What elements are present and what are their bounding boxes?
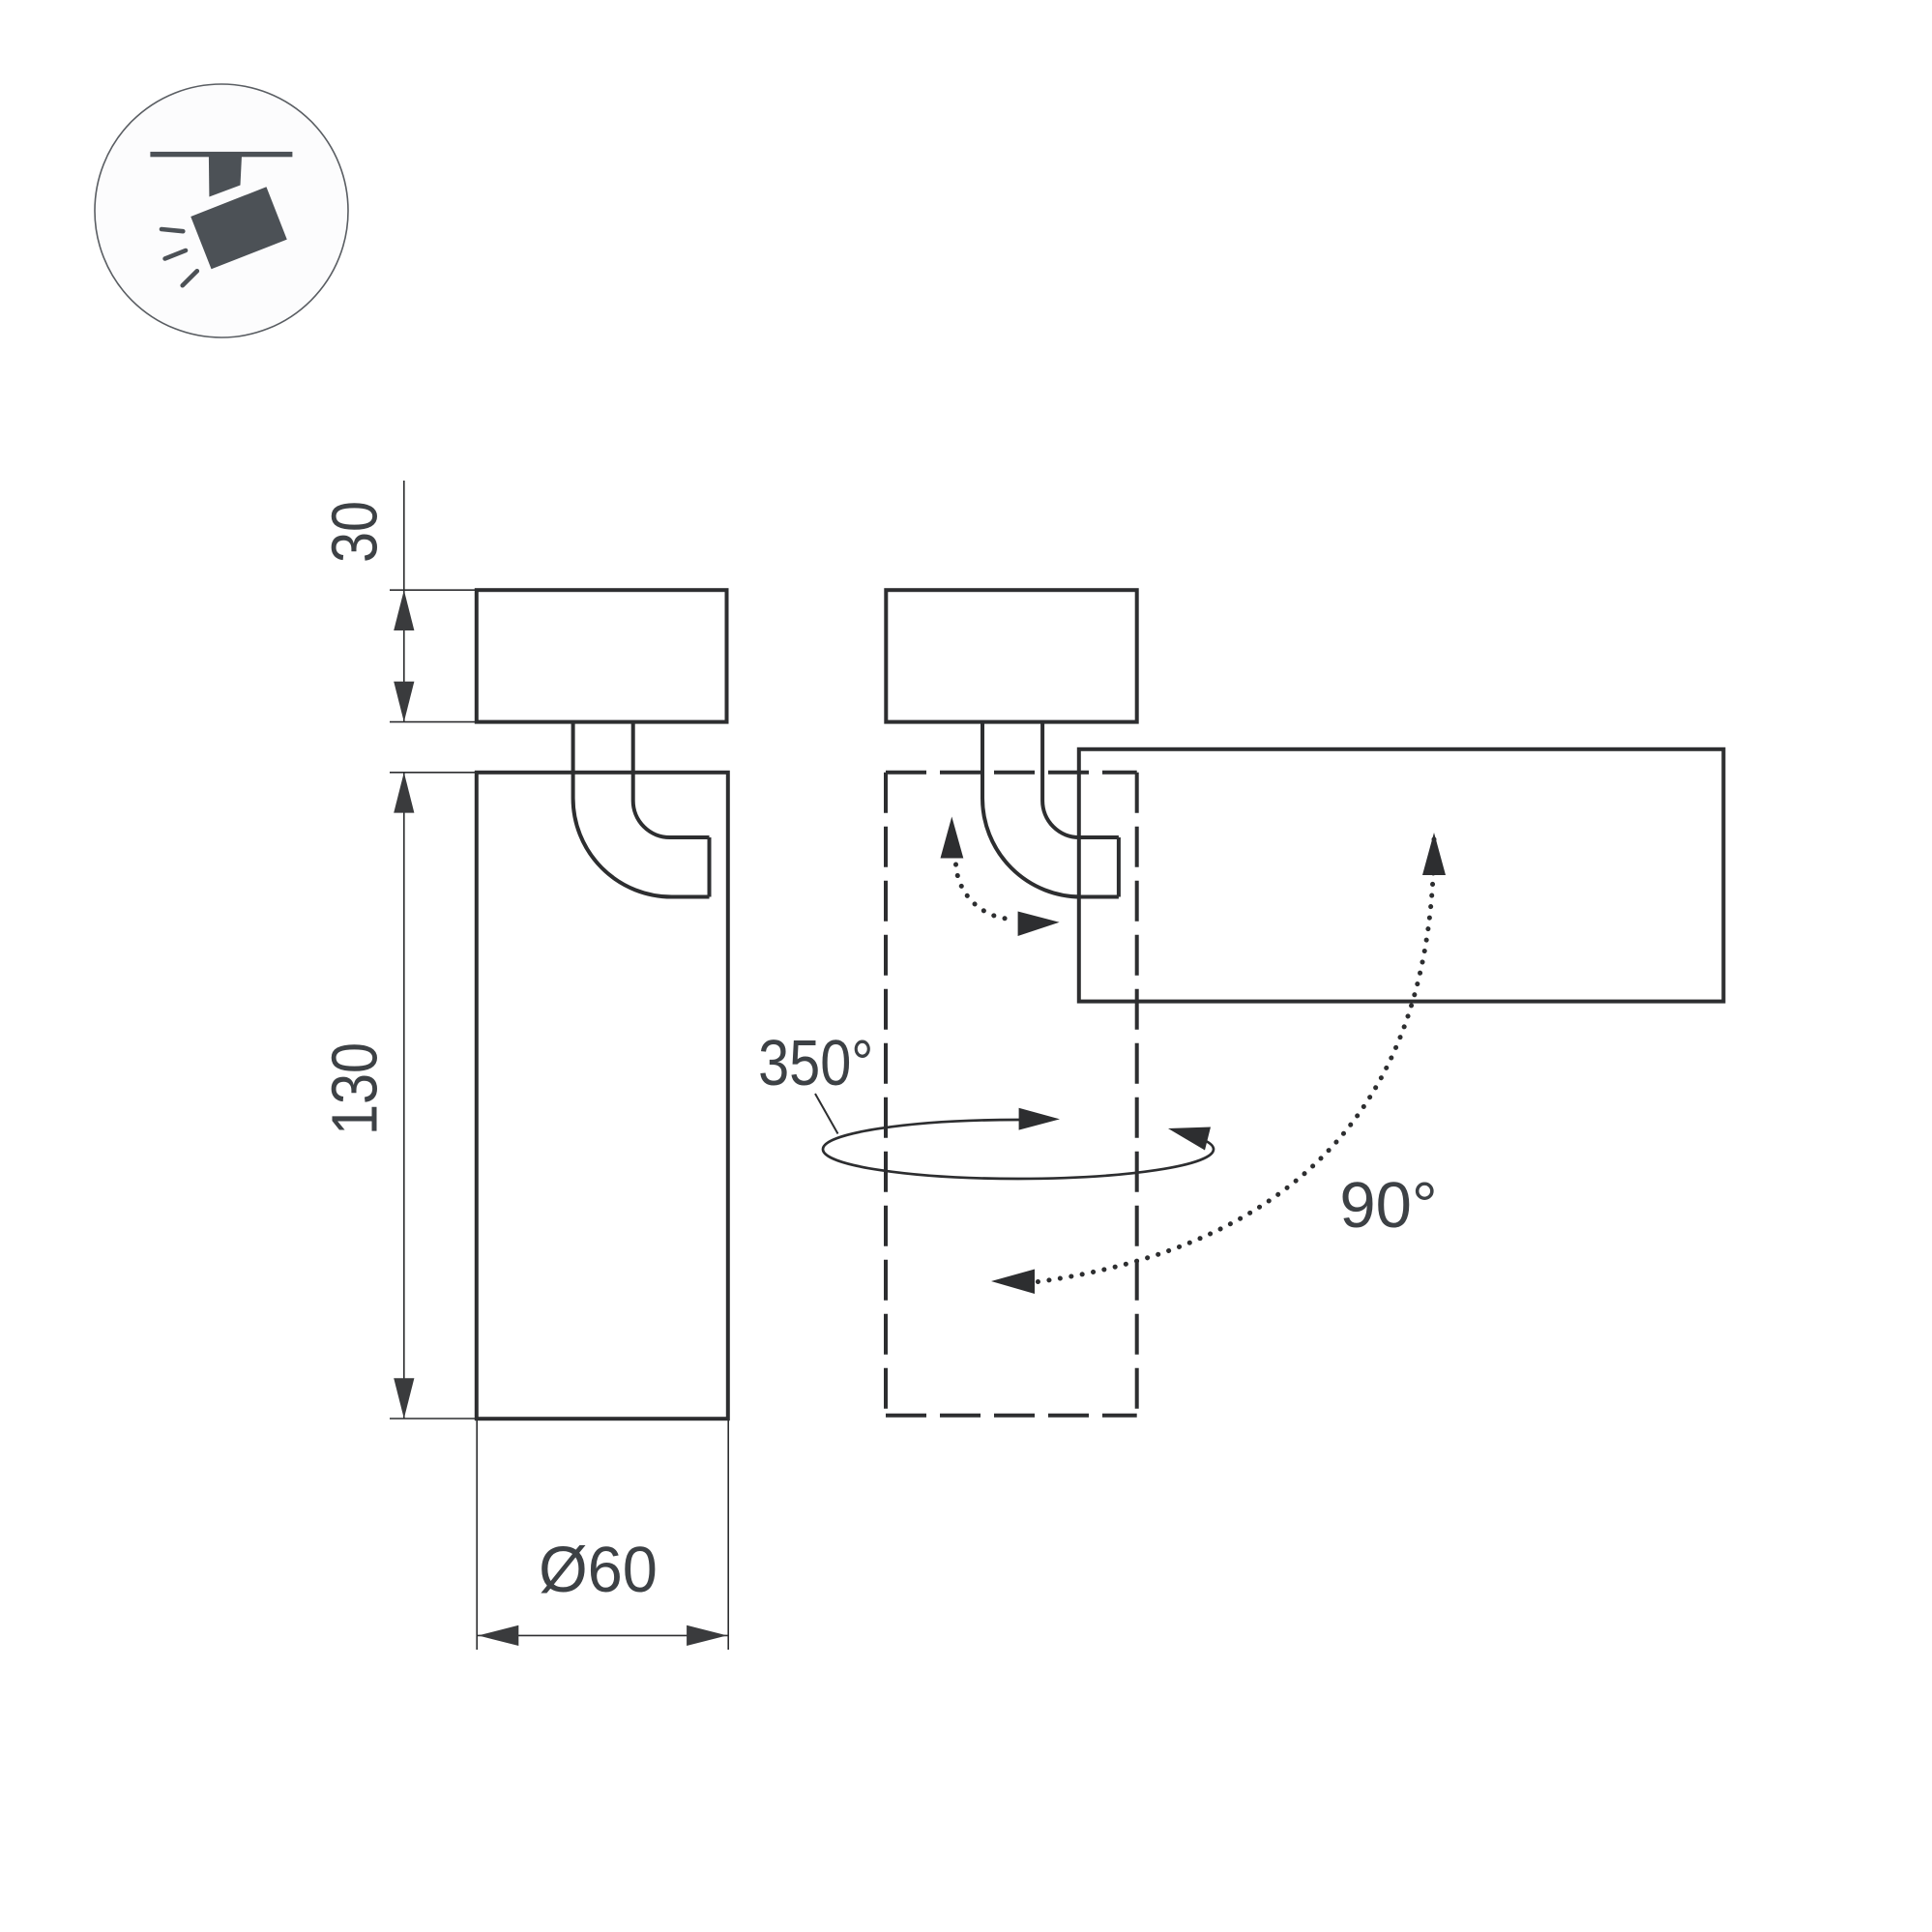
svg-text:130: 130	[318, 1042, 391, 1135]
svg-text:30: 30	[318, 501, 391, 563]
svg-text:350°: 350°	[758, 1027, 873, 1099]
svg-text:Ø60: Ø60	[539, 1533, 658, 1605]
svg-text:90°: 90°	[1339, 1169, 1437, 1242]
